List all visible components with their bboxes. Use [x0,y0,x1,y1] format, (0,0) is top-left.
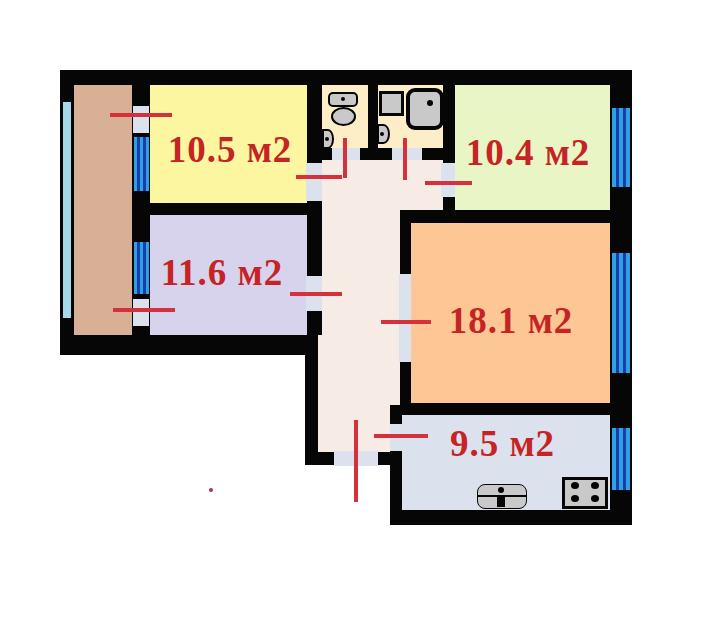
wall-left-bottom [60,335,318,355]
door-mark-toilet [343,138,347,178]
door-bedroom-top-right [441,163,455,197]
wall-living-bottom [400,403,632,415]
bathtub-icon [427,100,433,106]
door-mark-kitchen [374,434,428,438]
door-balcony-top [133,106,149,133]
bathtub-icon [406,88,444,130]
stray-mark [209,488,213,492]
stove-icon [562,477,608,509]
toilet-icon [341,97,345,101]
stove-icon [591,482,599,489]
door-mark-bedroom-top-left [296,175,342,179]
door-mark-bathroom [403,138,407,180]
door-mark-bedroom-top-right [425,181,472,185]
door-mark-bedroom-mid-left [290,292,342,296]
area-label-bedroom-top-left: 10.5 м2 [160,130,300,170]
door-bedroom-top-left [306,163,322,201]
area-label-bedroom-mid-left: 11.6 м2 [152,253,292,293]
door-mark-balcony-bottom [113,308,175,312]
wash-sink-icon [380,132,384,136]
door-balcony-bottom [133,299,149,326]
wall-top [60,70,632,85]
wall-kitchen-bottom [390,510,632,525]
area-label-living: 18.1 м2 [437,301,585,341]
balcony-glazing [63,102,71,318]
wall-between-bedrooms-left [148,203,308,215]
door-mark-balcony-top [110,113,172,117]
kitchen-sink-icon [498,487,504,493]
stove-icon [571,482,579,489]
door-mark-living [381,320,431,324]
stove-icon [591,495,599,502]
window-bedroom-top-right-icon [612,108,630,187]
door-living [399,274,411,362]
window-kitchen-icon [612,428,630,490]
area-label-kitchen: 9.5 м2 [440,424,565,464]
wall-hall-left [305,335,318,465]
wall-living-top [400,210,632,223]
door-bathroom [392,148,422,160]
window-bedroom-top-left-icon [134,137,149,191]
wash-sink-icon [325,137,329,141]
wall-kitchen-left [390,405,402,510]
shower-box-icon [379,91,404,116]
stove-icon [571,495,579,502]
window-bedroom-mid-left-icon [134,242,149,294]
floor-plan: 10.5 м2 10.4 м2 11.6 м2 18.1 м2 9.5 м2 [0,0,717,627]
balcony [74,85,132,335]
area-label-bedroom-top-right: 10.4 м2 [454,133,602,173]
toilet-icon [331,107,356,126]
kitchen-sink-icon [497,497,505,507]
entrance-mark [354,420,358,502]
window-living-icon [612,253,630,373]
